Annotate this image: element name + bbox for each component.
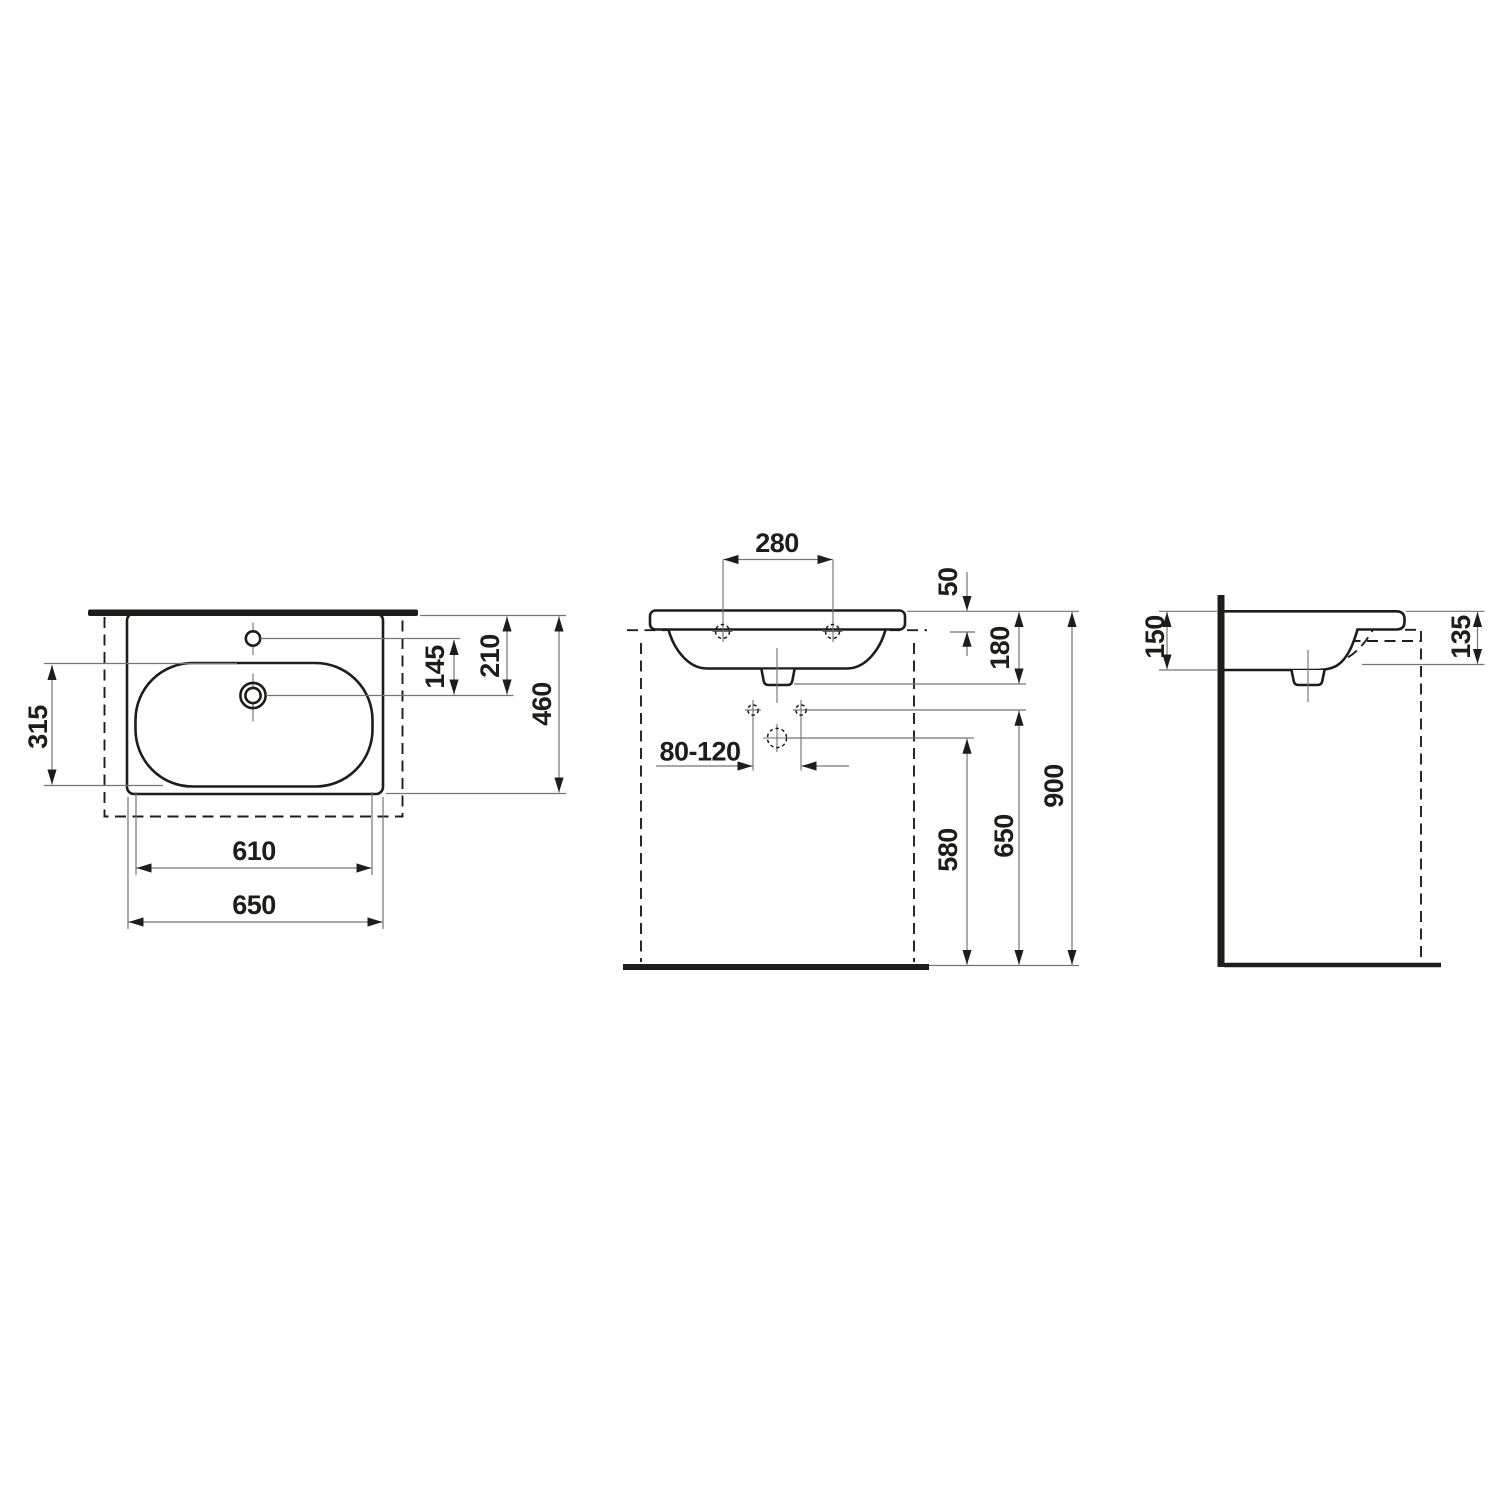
dim-label-overall-width: 650	[232, 890, 276, 920]
wall-edge-bar	[88, 610, 418, 617]
dim-label-fixing-height: 650	[989, 814, 1019, 858]
dim-label-drain-offset: 80-120	[659, 737, 740, 767]
side-view: 150 135	[1140, 595, 1485, 967]
technical-drawing-canvas: 315 145 210 460 610 650	[0, 0, 1500, 1500]
dim-label-taphole-to-drain: 145	[420, 645, 450, 689]
dim-label-edge-to-drain: 210	[475, 634, 505, 678]
dim-label-rim-to-outlet: 180	[985, 626, 1015, 670]
top-view: 315 145 210 460 610 650	[23, 610, 566, 930]
washbasin-drawing: 315 145 210 460 610 650	[0, 0, 1500, 1500]
dim-label-rim-height: 900	[1039, 764, 1069, 808]
dim-label-wall-depth: 150	[1140, 615, 1170, 659]
dim-label-rim-to-fixing: 50	[933, 567, 963, 596]
rim-front-outline	[650, 611, 905, 630]
wall-bar	[1218, 595, 1225, 967]
dim-label-trap-height: 580	[933, 828, 963, 872]
taphole-icon	[246, 631, 260, 645]
dim-label-taphole-spacing: 280	[755, 528, 799, 558]
bowl-outline	[136, 663, 373, 787]
drain-inner-circle	[245, 688, 260, 703]
dim-label-overall-depth: 460	[527, 682, 557, 726]
front-view: 280 50 180 80-120 580 650 900	[623, 528, 1079, 967]
dim-label-front-depth: 135	[1446, 615, 1476, 659]
dim-label-bowl-depth: 315	[23, 705, 53, 749]
drain-outlet-front	[762, 670, 795, 686]
dim-label-bowl-width: 610	[232, 836, 276, 866]
